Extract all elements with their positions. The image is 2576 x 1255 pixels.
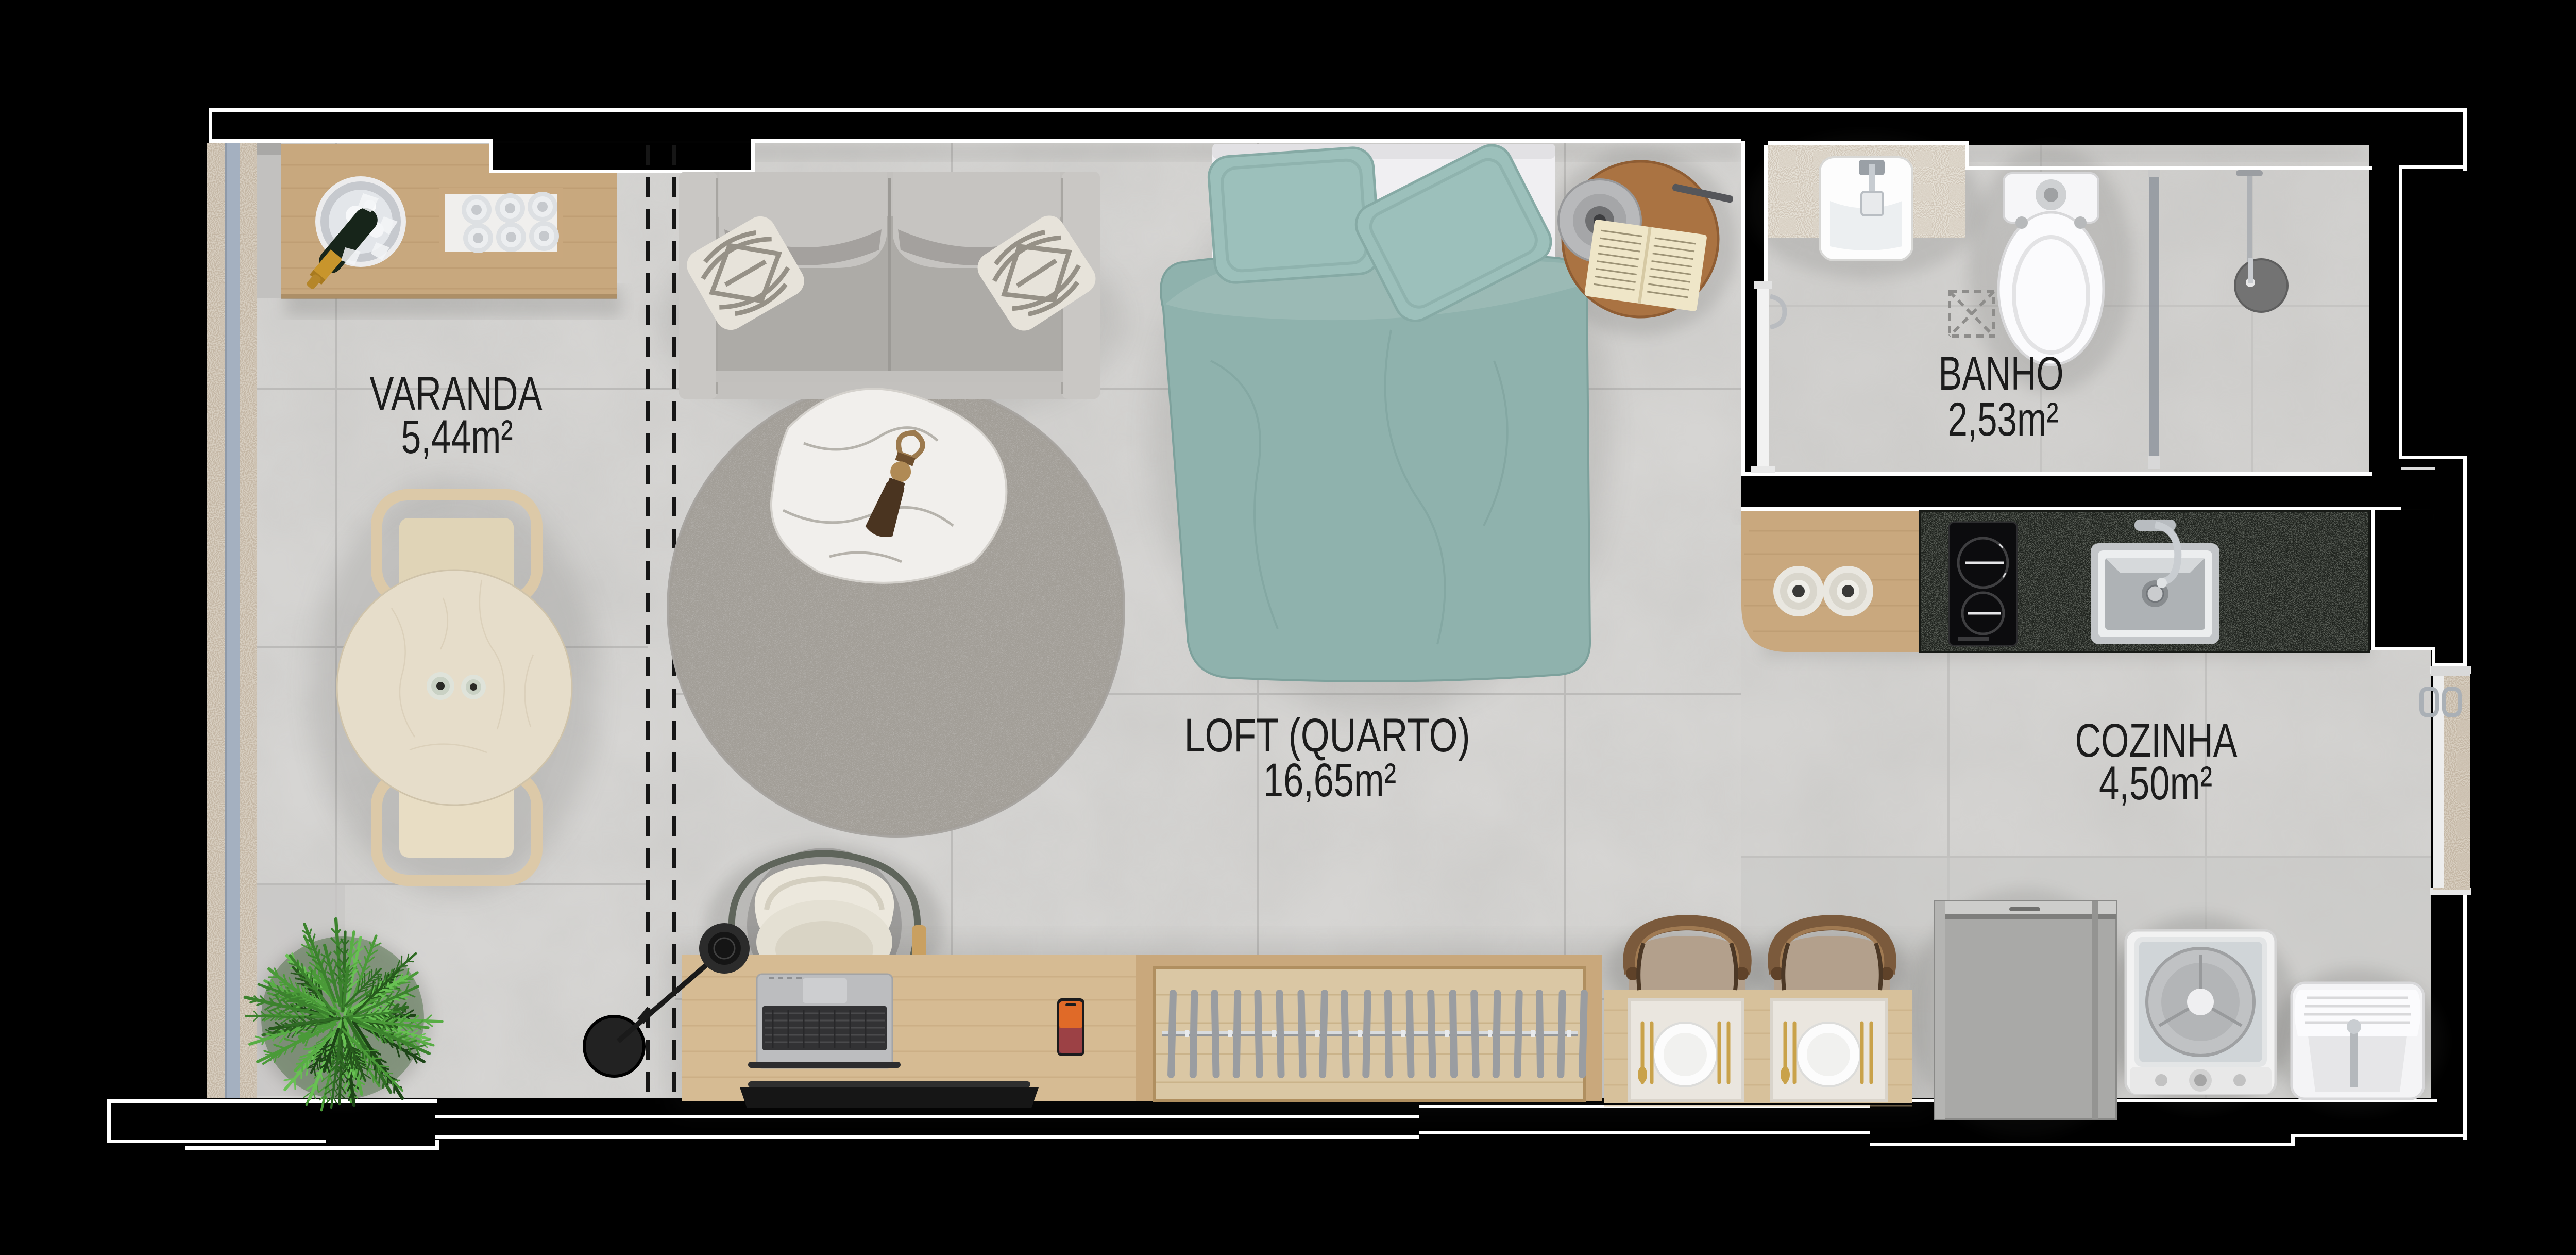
svg-text:BANHO: BANHO: [1939, 347, 2064, 400]
svg-text:4,50m²: 4,50m²: [2099, 757, 2212, 810]
svg-text:16,65m²: 16,65m²: [1263, 754, 1396, 807]
svg-text:2,53m²: 2,53m²: [1948, 393, 2059, 446]
svg-text:5,44m²: 5,44m²: [401, 411, 513, 463]
